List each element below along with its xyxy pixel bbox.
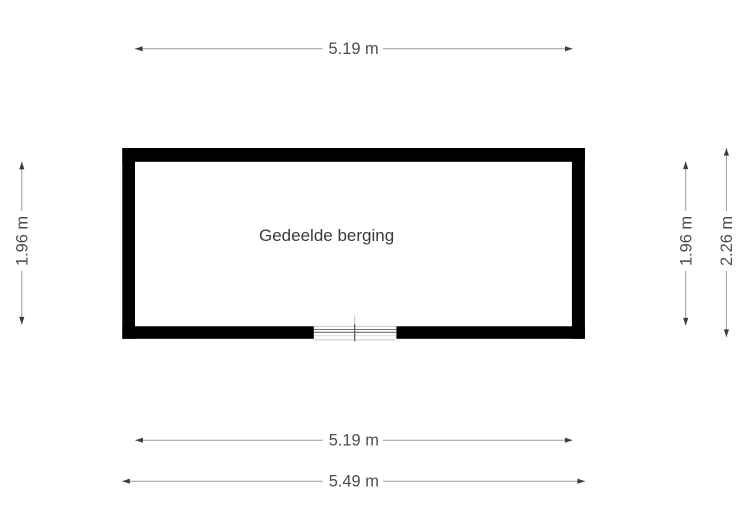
svg-text:5.19 m: 5.19 m (329, 432, 379, 450)
svg-text:1.96 m: 1.96 m (13, 216, 31, 266)
svg-text:2.26 m: 2.26 m (718, 216, 736, 266)
svg-text:5.19 m: 5.19 m (329, 40, 379, 58)
svg-text:Gedeelde berging: Gedeelde berging (259, 226, 394, 245)
svg-text:1.96 m: 1.96 m (677, 216, 695, 266)
svg-text:5.49 m: 5.49 m (329, 473, 379, 491)
